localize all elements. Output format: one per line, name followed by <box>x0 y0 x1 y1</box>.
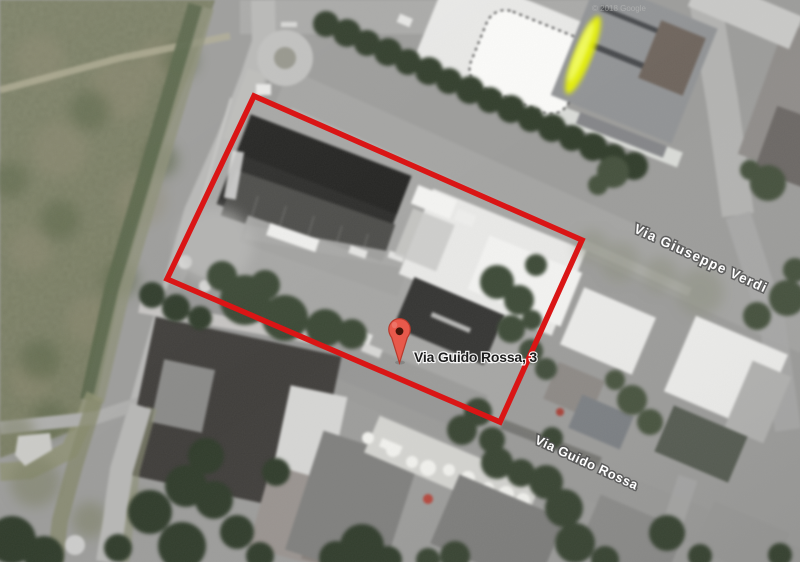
svg-text:Via Guido Rossa, 3: Via Guido Rossa, 3 <box>414 349 537 365</box>
svg-text:© 2018 Google: © 2018 Google <box>592 4 646 13</box>
